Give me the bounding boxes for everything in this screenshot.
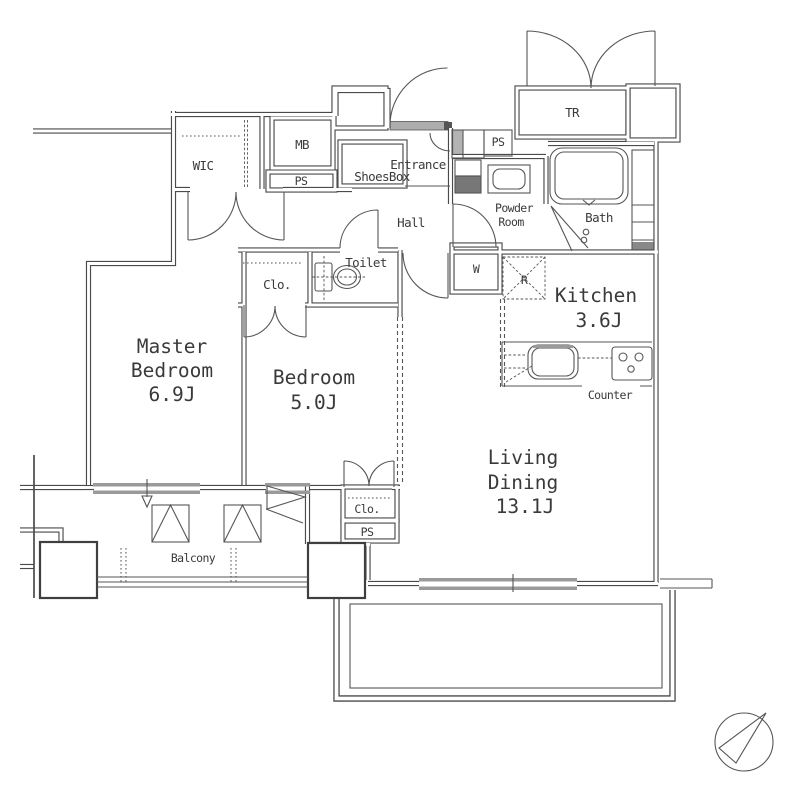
corner-column-block (628, 86, 678, 140)
closet-upper-door-left (244, 305, 275, 337)
trunk-room-door-right (591, 31, 655, 88)
master-bedroom-door (236, 192, 284, 240)
powder-room-label-1: Powder (495, 201, 534, 215)
hall-label: Hall (397, 215, 425, 230)
bedroom-sliding-partition (398, 317, 403, 483)
wic-label: WIC (193, 158, 214, 173)
bath-door (551, 206, 589, 251)
wall-entrance-recess (336, 91, 388, 129)
lower-balcony-inner (350, 604, 662, 688)
bath-door-knob-bottom (581, 237, 587, 243)
sink-edge-band (533, 345, 573, 348)
kitchen-sink (528, 345, 578, 379)
kitchen-name: Kitchen (555, 284, 637, 307)
living-door (403, 253, 448, 298)
closet-upper-label: Clo. (263, 277, 291, 292)
entrance-cell-hatch (452, 130, 463, 158)
living-name-1: Living (488, 446, 558, 469)
floor-plan: WIC MB PS Entrance ShoesBox PS TR Hall P… (0, 0, 800, 800)
master-bedroom-size: 6.9J (149, 383, 196, 406)
ac-unit-1 (152, 505, 189, 542)
lower-balcony-wall (337, 590, 673, 699)
ps-entrance-label: PS (492, 135, 505, 149)
fridge-label: R (521, 273, 528, 287)
fixtures (182, 120, 773, 771)
powder-room-label-2: Room (498, 215, 524, 229)
entrance-upper-box (334, 88, 386, 128)
bath-door-knob-top (583, 229, 589, 235)
wall-west (89, 111, 174, 485)
outswing-door-line (266, 509, 303, 523)
washer-label: W (473, 262, 480, 276)
bedroom-door-band (265, 483, 310, 487)
north-compass-icon (715, 713, 773, 771)
burner-1 (619, 353, 627, 361)
wic-pole-dashed (245, 120, 248, 187)
bedroom-size: 5.0J (291, 391, 338, 414)
tr-label: TR (565, 105, 580, 120)
bath-shelf-dark (632, 242, 654, 250)
living-size: 13.1J (496, 495, 555, 518)
living-name-2: Dining (488, 471, 558, 494)
compass (715, 713, 773, 771)
floor-plan-canvas: WIC MB PS Entrance ShoesBox PS TR Hall P… (0, 0, 800, 800)
closet-lower-label: Clo. (354, 502, 379, 516)
closet-lower-door-left (344, 461, 369, 487)
kitchen-counter (502, 342, 652, 386)
entrance-door-swing (390, 68, 448, 126)
column-southwest (40, 542, 97, 598)
toilet-label: Toilet (345, 255, 387, 270)
labels: WIC MB PS Entrance ShoesBox PS TR Hall P… (131, 105, 637, 565)
shoes-box-label: ShoesBox (354, 169, 410, 184)
lower-balcony-wall (337, 590, 673, 699)
bedroom-name: Bedroom (273, 366, 355, 389)
entrance-door-leaf (390, 122, 448, 131)
balcony-edge-rail (97, 577, 308, 587)
ac-unit-2-mark (224, 505, 261, 542)
mb-label: MB (295, 137, 309, 152)
master-bedroom-name-1: Master (137, 335, 207, 358)
ps-lower-label: PS (361, 525, 374, 539)
wall-west (89, 111, 174, 485)
doors (188, 31, 655, 487)
living-window-band (419, 578, 577, 582)
burner-2 (635, 353, 643, 361)
wic-door (188, 192, 236, 240)
wall-left-stub-2 (20, 530, 61, 542)
powder-cabinet-dark (455, 176, 481, 193)
ps-meter-label: PS (295, 174, 308, 188)
wall-cores (20, 86, 678, 699)
toilet-door (340, 210, 378, 248)
trunk-room-door-left (527, 31, 591, 88)
living-window-band2 (419, 587, 577, 591)
entrance-upper-box (334, 88, 386, 128)
east-stub-wall (660, 579, 712, 588)
balcony-structure (34, 455, 712, 688)
bathtub (550, 148, 628, 205)
north-needle-icon (719, 713, 766, 763)
master-bedroom-name-2: Bedroom (131, 359, 213, 382)
outswing-door-icon (267, 486, 305, 509)
powder-room-door (453, 204, 496, 247)
balcony-label: Balcony (171, 551, 216, 565)
ac-unit-1-mark (152, 505, 189, 542)
closet-lower-door-right (369, 461, 394, 487)
ac-unit-2 (224, 505, 261, 542)
counter-label: Counter (588, 388, 633, 402)
walls (20, 86, 678, 699)
column-balcony-right (308, 543, 365, 598)
stove (612, 347, 652, 380)
kitchen-size: 3.6J (576, 309, 623, 332)
corner-column-block (628, 86, 678, 140)
entry-frame-arc (430, 133, 450, 151)
window-flag-icon (142, 496, 152, 507)
bath-shelf (632, 150, 654, 250)
bath-label: Bath (585, 210, 613, 225)
wall-entrance-recess (336, 91, 388, 129)
burner-3 (628, 366, 634, 372)
closet-upper-door-right (275, 305, 306, 337)
